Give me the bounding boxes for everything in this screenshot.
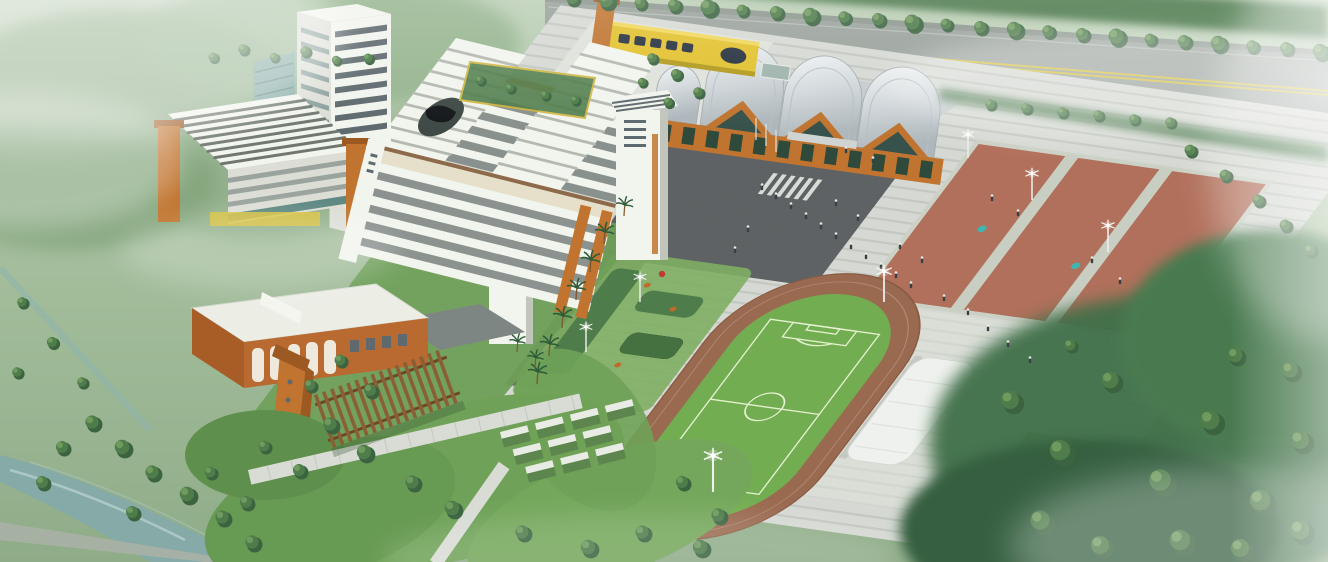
person — [1017, 209, 1020, 216]
window — [350, 340, 359, 352]
gym-door — [776, 140, 790, 159]
person — [850, 242, 853, 249]
person — [857, 214, 860, 221]
person — [1119, 277, 1122, 284]
campus-rendering — [0, 0, 1328, 562]
person — [910, 281, 913, 288]
person — [734, 246, 737, 253]
red-umbrella — [659, 271, 665, 277]
person — [865, 252, 868, 259]
person — [1029, 356, 1032, 363]
person — [921, 256, 924, 263]
haze-right — [1230, 0, 1328, 562]
gym-door — [848, 150, 862, 169]
pylon-slot — [624, 136, 646, 139]
person — [1091, 256, 1094, 263]
person — [845, 146, 848, 153]
gym-door — [919, 160, 933, 179]
person — [775, 192, 778, 199]
window — [398, 334, 407, 346]
person — [991, 194, 994, 201]
gym-door — [824, 147, 838, 166]
person — [943, 294, 946, 301]
person — [835, 232, 838, 239]
arch — [324, 340, 336, 374]
tower-hole — [288, 380, 293, 385]
gym-door — [753, 137, 767, 156]
gym-door — [729, 133, 743, 152]
haze-patch — [120, 210, 400, 290]
tower-hole — [286, 398, 291, 403]
pylon-shade — [660, 110, 668, 260]
person — [895, 271, 898, 278]
pylon-orange-slit — [652, 134, 658, 254]
gym-door — [800, 143, 814, 162]
gym-door — [895, 157, 909, 176]
person — [761, 183, 764, 190]
window — [366, 338, 375, 350]
person — [805, 212, 808, 219]
person — [987, 324, 990, 331]
person — [835, 199, 838, 206]
person — [820, 222, 823, 229]
window — [382, 336, 391, 348]
pylon-slot — [624, 144, 646, 147]
person — [747, 225, 750, 232]
person — [872, 156, 875, 163]
gym-door — [705, 130, 719, 149]
person — [899, 242, 902, 249]
person — [967, 308, 970, 315]
arch — [252, 348, 264, 382]
scene-canvas — [0, 0, 1328, 562]
person — [790, 202, 793, 209]
person — [1007, 340, 1010, 347]
